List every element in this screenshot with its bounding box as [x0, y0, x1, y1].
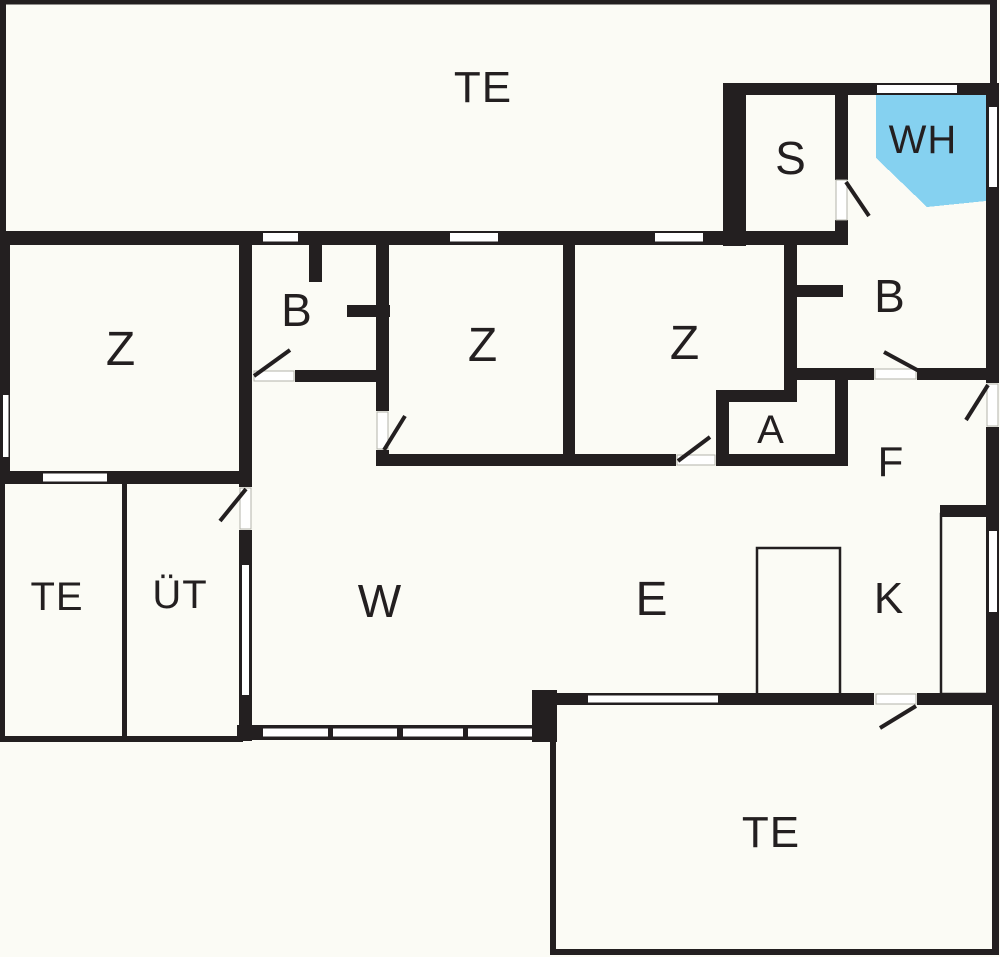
room-label-dining-room: E — [635, 576, 668, 624]
wall — [0, 0, 997, 5]
door-opening — [876, 694, 916, 704]
wall — [0, 484, 5, 742]
wall — [917, 368, 986, 380]
door-swing — [884, 352, 919, 371]
room-label-terrace-bottom: TE — [742, 811, 800, 855]
wall — [990, 0, 997, 90]
room-label-bathroom-left: B — [281, 287, 313, 333]
door-opening — [836, 180, 847, 220]
wall — [563, 243, 575, 455]
room-label-terrace-top: TE — [454, 66, 512, 110]
wall — [716, 454, 848, 466]
door-opening — [875, 369, 916, 379]
wall — [309, 244, 322, 282]
window — [403, 729, 463, 737]
room-label-kitchen: K — [874, 577, 904, 621]
window — [989, 531, 997, 612]
wall — [239, 231, 252, 487]
wall — [376, 244, 389, 411]
wall — [0, 471, 252, 484]
wall — [550, 949, 999, 955]
floorplan-drawing — [0, 0, 1000, 957]
window — [468, 729, 532, 737]
wall — [0, 0, 6, 233]
room-label-whirlpool: WH — [889, 120, 958, 160]
door-swing — [966, 385, 988, 420]
door-swing — [880, 706, 916, 728]
window — [43, 474, 107, 482]
wall — [835, 220, 848, 245]
wall — [790, 285, 843, 297]
wall — [550, 740, 556, 955]
window — [450, 233, 498, 242]
floorplan: TE S WH Z B Z Z B A F TE ÜT W E K TE — [0, 0, 1000, 957]
door-opening — [987, 384, 998, 426]
wall — [784, 368, 874, 380]
wall — [917, 693, 999, 705]
window — [989, 107, 997, 187]
wall — [122, 484, 127, 738]
wall — [835, 95, 848, 180]
room-label-bedroom-middle: Z — [468, 322, 498, 370]
wall — [723, 83, 999, 95]
room-label-bedroom-right: Z — [670, 320, 700, 368]
wall — [532, 690, 557, 742]
kitchen-counter — [941, 514, 989, 694]
window — [242, 565, 249, 695]
room-label-bedroom-left: Z — [106, 326, 136, 374]
wall — [835, 372, 848, 466]
room-label-living-room: W — [358, 578, 402, 624]
wall — [723, 83, 746, 246]
wall — [295, 370, 378, 382]
wall — [940, 505, 999, 517]
room-label-bathroom-right: B — [874, 273, 906, 319]
wall — [0, 231, 848, 245]
window — [588, 696, 718, 703]
room-label-sauna: S — [775, 135, 807, 181]
window — [333, 729, 397, 737]
wall — [716, 390, 797, 402]
window — [655, 233, 703, 242]
chimney-block — [757, 548, 840, 698]
wall — [376, 454, 676, 466]
walls — [0, 0, 999, 955]
window — [877, 85, 957, 93]
window — [263, 233, 298, 242]
room-label-hallway: F — [878, 441, 905, 483]
room-label-covered-terrace: ÜT — [152, 575, 207, 615]
room-label-storage: A — [757, 410, 785, 450]
room-label-terrace-left: TE — [30, 577, 83, 617]
wall — [0, 736, 243, 742]
window — [3, 395, 9, 457]
window — [263, 729, 328, 737]
wall — [992, 705, 999, 955]
door-swing — [846, 182, 869, 216]
